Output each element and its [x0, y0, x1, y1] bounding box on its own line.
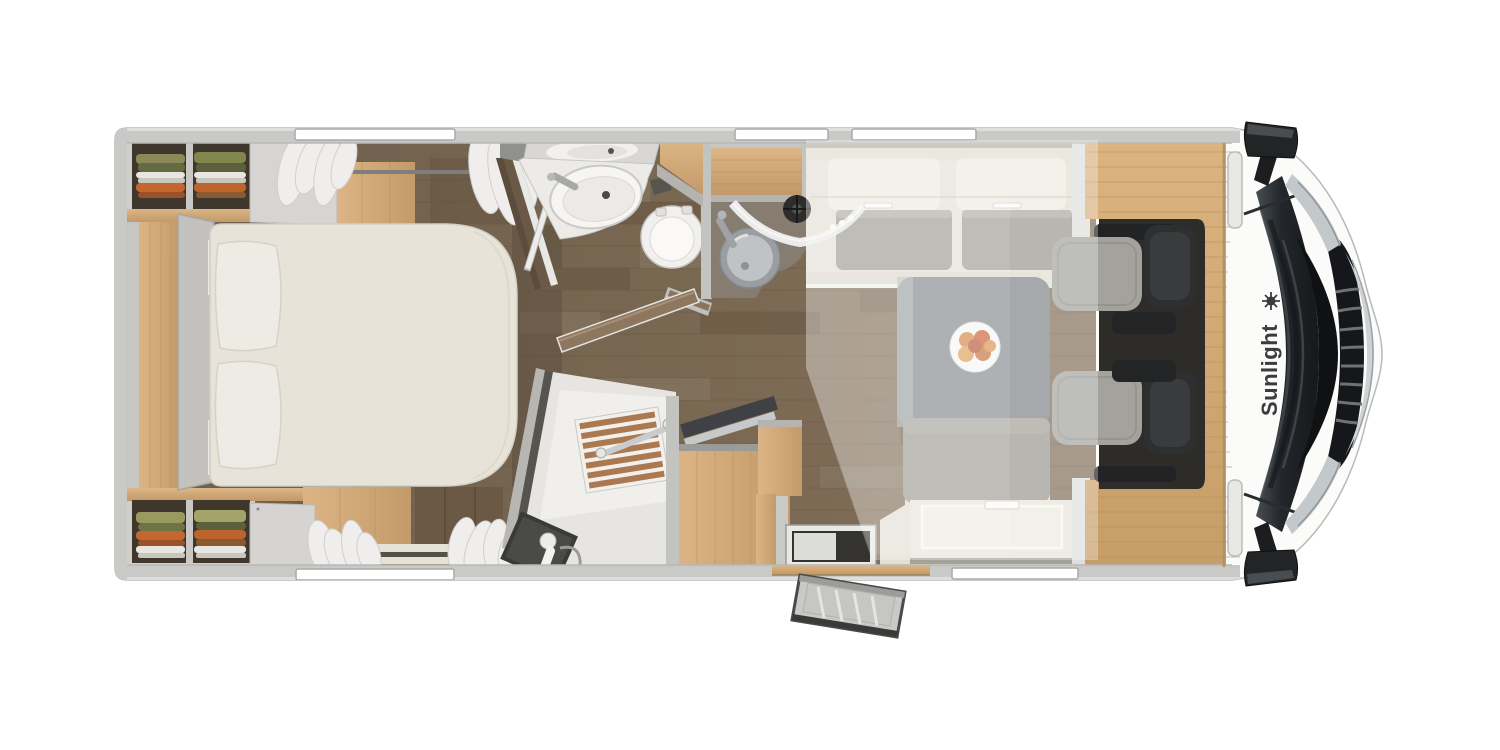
svg-text:Sunlight: Sunlight: [1257, 324, 1282, 416]
